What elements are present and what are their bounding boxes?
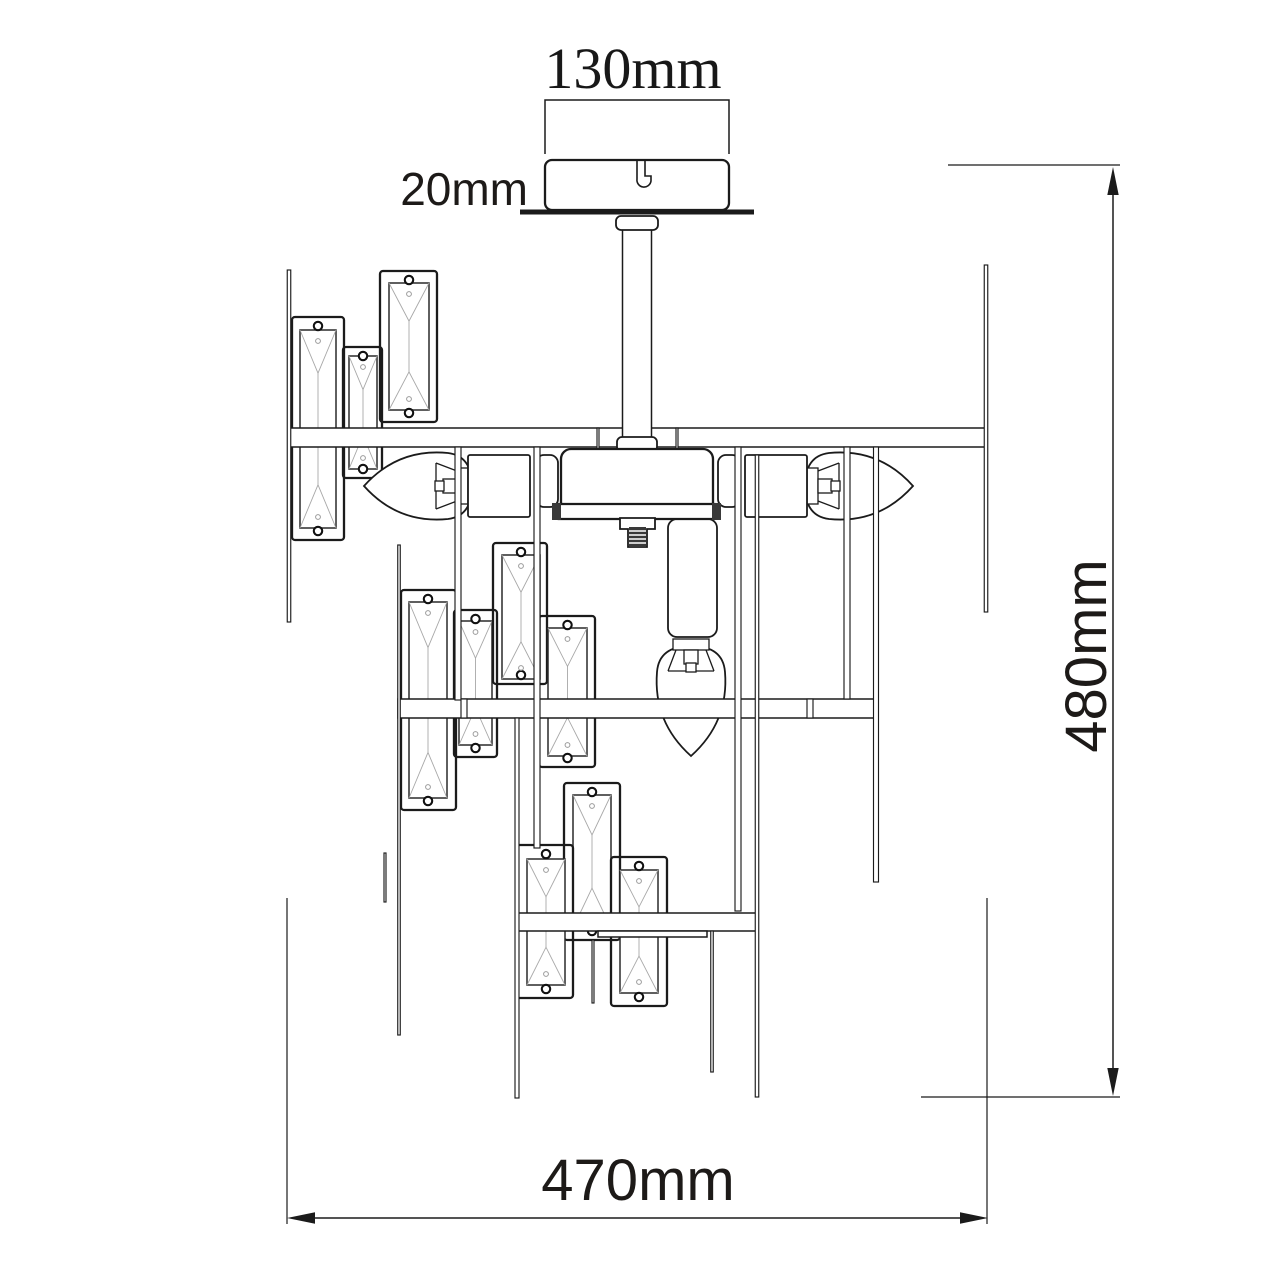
hanging-rod — [676, 428, 678, 450]
screw-thread-detail — [629, 527, 646, 547]
mount-hole-top — [542, 850, 550, 858]
mount-hole-top — [405, 276, 413, 284]
mount-hole-bottom — [563, 754, 571, 762]
hanging-rod — [455, 447, 461, 700]
dimension-label-overall-height: 480mm — [1054, 559, 1119, 752]
mount-hole-top — [563, 621, 571, 629]
hanging-rod — [735, 447, 741, 911]
hanging-rod — [984, 265, 988, 612]
mount-hole-bottom — [405, 409, 413, 417]
arm-bar — [398, 699, 878, 718]
hanging-rod — [384, 853, 386, 902]
crystal-panels-layer — [292, 271, 667, 1006]
hanging-rod — [844, 447, 850, 699]
mount-hole-bottom — [471, 744, 479, 752]
arm-bar — [598, 931, 707, 937]
holder-collar — [807, 468, 818, 504]
holder-collar — [673, 639, 709, 650]
hanging-rod — [287, 270, 291, 622]
crystal-panel — [343, 347, 382, 478]
lamp-socket — [668, 519, 717, 637]
dimension-canopy-width: 130mm — [544, 36, 729, 154]
candle-bulb-right — [805, 452, 913, 519]
mount-hole-bottom — [314, 527, 322, 535]
holder-neck — [818, 479, 832, 493]
hanging-rod — [874, 447, 879, 882]
drawing-canvas: 130mm 20mm 480mm 470mm — [0, 0, 1280, 1280]
lamp-socket — [468, 455, 530, 517]
hanging-rod — [592, 940, 594, 1003]
dimension-overall-height: 480mm — [921, 165, 1120, 1097]
hanging-rod — [755, 455, 759, 1097]
crystal-panel — [380, 271, 437, 422]
mount-hole-top — [635, 862, 643, 870]
mount-hole-top — [359, 352, 367, 360]
mount-hole-top — [424, 595, 432, 603]
dimension-label-overall-width: 470mm — [541, 1148, 734, 1213]
crystal-panel — [539, 616, 595, 767]
hanging-rod — [398, 545, 401, 1035]
mount-hole-top — [588, 788, 596, 796]
arrowhead-down — [1107, 1068, 1118, 1096]
center-hub — [561, 449, 713, 512]
mount-hole-bottom — [542, 985, 550, 993]
dimension-label-canopy-width: 130mm — [544, 36, 721, 101]
arrowhead-right — [960, 1212, 988, 1223]
arrowhead-left — [287, 1212, 315, 1223]
arrowhead-up — [1107, 167, 1118, 195]
dimension-label-canopy-height: 20mm — [400, 163, 528, 215]
dim-bracket-130 — [545, 100, 729, 154]
dimension-canopy-height: 20mm — [400, 163, 528, 215]
hub-rim-cap — [552, 503, 561, 520]
stem-collar-top — [616, 216, 658, 230]
hanging-rod — [807, 699, 813, 718]
hub-rim-cap — [712, 503, 721, 520]
holder-neck — [684, 650, 698, 664]
mount-hole-top — [517, 548, 525, 556]
hub-rim — [555, 504, 718, 519]
hanging-rod — [597, 428, 599, 450]
stem-body — [623, 230, 652, 440]
mount-hole-bottom — [359, 465, 367, 473]
candle-bulb-bottom — [657, 639, 726, 756]
hanging-rod — [711, 931, 714, 1072]
hanging-rod — [461, 699, 467, 718]
hanging-rod — [534, 447, 540, 848]
mount-hole-bottom — [517, 671, 525, 679]
mount-hole-bottom — [424, 797, 432, 805]
mount-hole-top — [314, 322, 322, 330]
holder-pin — [435, 481, 444, 491]
holder-pin — [831, 481, 840, 491]
hanging-rod — [515, 718, 519, 1098]
chandelier-dimension-drawing: 130mm 20mm 480mm 470mm — [0, 0, 1280, 1280]
holder-pin — [686, 663, 696, 672]
mount-hole-bottom — [635, 993, 643, 1001]
lamp-socket — [745, 455, 807, 517]
arm-bar — [517, 913, 757, 931]
mount-hole-top — [471, 615, 479, 623]
